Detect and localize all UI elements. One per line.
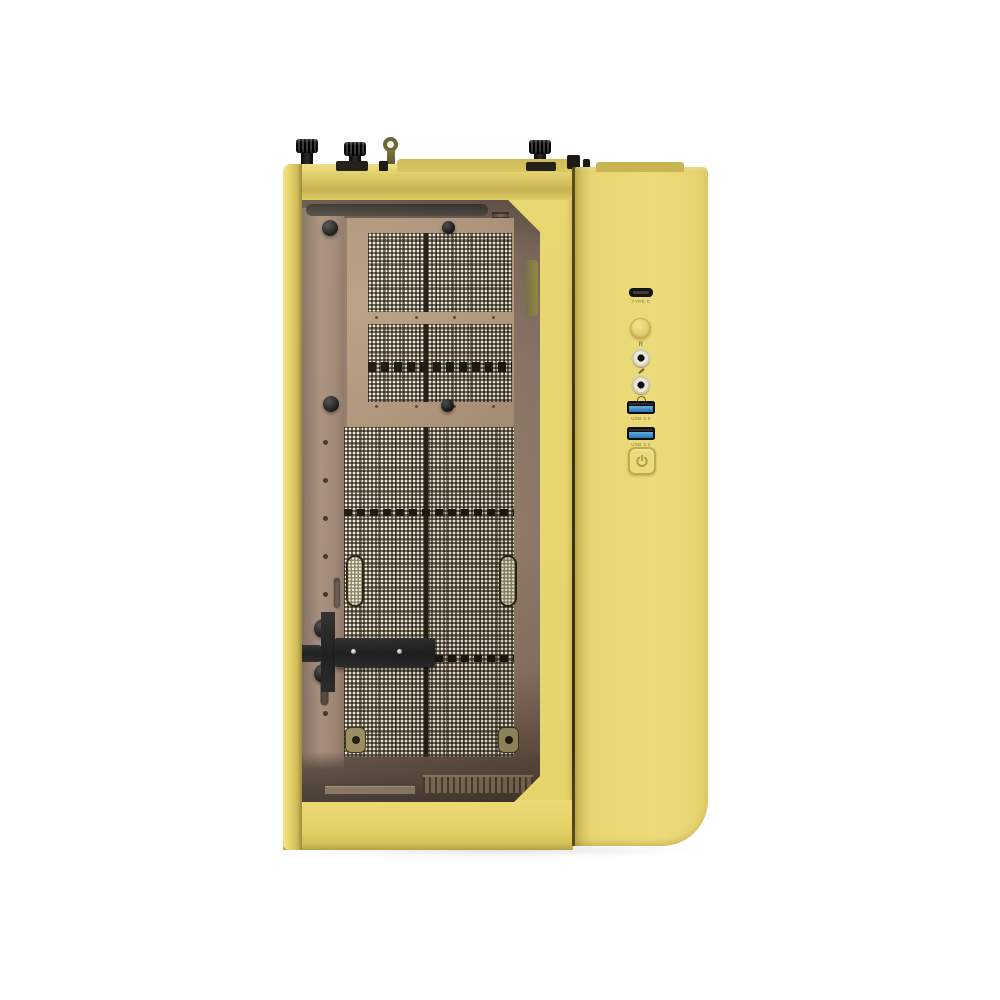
screw-dot bbox=[375, 405, 378, 408]
usb3-port bbox=[627, 427, 655, 440]
thumbscrew-base bbox=[526, 162, 556, 171]
shroud-ledge bbox=[325, 786, 415, 794]
reset-button bbox=[630, 318, 651, 339]
power-button bbox=[628, 447, 656, 475]
power-icon bbox=[635, 454, 649, 468]
pc-case: TYPE C R USB 3.0 USB 3.0 bbox=[0, 0, 1000, 1000]
mic-jack bbox=[632, 349, 650, 367]
vertical-slot bbox=[333, 577, 341, 609]
screw-dot bbox=[453, 316, 456, 319]
reset-label: R bbox=[611, 342, 671, 348]
screw-dot bbox=[375, 316, 378, 319]
screw-dot bbox=[492, 316, 495, 319]
screw-hole bbox=[323, 592, 328, 597]
usb-c-label: TYPE C bbox=[611, 300, 671, 305]
shroud-ribbed-edge bbox=[423, 775, 533, 793]
support-bracket bbox=[335, 638, 435, 667]
glass-side-panel bbox=[283, 164, 573, 850]
usb3-label: USB 3.0 bbox=[611, 417, 671, 422]
bracket-screw bbox=[351, 649, 356, 654]
tempered-glass-window bbox=[302, 200, 540, 802]
screw-dot bbox=[415, 316, 418, 319]
screw-hole bbox=[323, 516, 328, 521]
front-panel: TYPE C R USB 3.0 USB 3.0 bbox=[575, 167, 708, 846]
interior-side-tab bbox=[526, 260, 538, 316]
rubber-grommet bbox=[322, 220, 338, 236]
rubber-grommet bbox=[441, 399, 454, 412]
scene: TYPE C R USB 3.0 USB 3.0 bbox=[0, 0, 1000, 1000]
mesh-grid-top bbox=[368, 233, 512, 312]
mesh-panel-main bbox=[344, 427, 514, 757]
mesh-grid-middle bbox=[368, 324, 512, 402]
rubber-grommet bbox=[442, 221, 455, 234]
interior-top-rail bbox=[306, 204, 488, 216]
clip-foot bbox=[379, 161, 388, 171]
side-panel-front-edge bbox=[283, 164, 302, 850]
screw-hole bbox=[323, 478, 328, 483]
headphone-jack bbox=[632, 376, 650, 394]
usb3-port bbox=[627, 401, 655, 414]
cable-slot bbox=[346, 555, 364, 607]
cable-slot bbox=[499, 555, 517, 607]
mount-pad bbox=[498, 727, 519, 753]
screw-dot bbox=[492, 405, 495, 408]
bracket-screw bbox=[397, 649, 402, 654]
bracket-tab bbox=[302, 645, 322, 662]
bracket-vertical-bar bbox=[321, 612, 335, 692]
screw-hole bbox=[323, 554, 328, 559]
mount-pad bbox=[345, 727, 366, 753]
front-panel-notch bbox=[596, 162, 684, 172]
mic-icon bbox=[638, 368, 645, 374]
side-panel-bottom-band bbox=[283, 800, 573, 850]
screw-dot bbox=[415, 405, 418, 408]
usb-c-port bbox=[629, 288, 653, 297]
thumbscrew-base bbox=[336, 161, 368, 171]
screw-hole bbox=[323, 711, 328, 716]
rubber-grommet bbox=[323, 396, 339, 412]
screw-hole bbox=[323, 440, 328, 445]
